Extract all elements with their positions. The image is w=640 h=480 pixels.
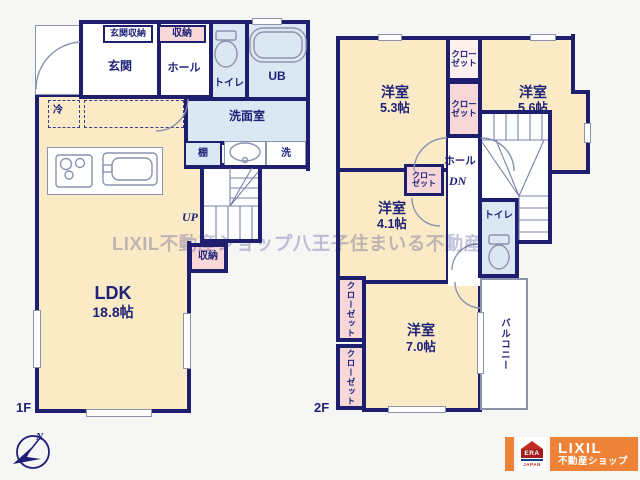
closet-top-label: クローゼット bbox=[451, 50, 477, 68]
room-56-name: 洋室 bbox=[501, 84, 565, 100]
genkan-label: 玄関 bbox=[96, 60, 144, 74]
window bbox=[86, 409, 152, 417]
floor2-label: 2F bbox=[314, 400, 329, 415]
shelf-label: 棚 bbox=[198, 149, 208, 160]
toilet-2f-label: トイレ bbox=[480, 211, 517, 222]
washroom-label: 洗面室 bbox=[214, 110, 280, 124]
closet-70b: クローゼット bbox=[336, 344, 366, 410]
toilet-1f-label: トイレ bbox=[210, 78, 248, 90]
ub-label: UB bbox=[262, 70, 292, 84]
window bbox=[584, 123, 591, 143]
room-bath-ub bbox=[245, 20, 310, 101]
closet-41-label: クローゼット bbox=[412, 172, 436, 189]
hall-1f-label: ホール bbox=[158, 62, 210, 75]
stairs-up-label: UP bbox=[182, 210, 198, 225]
closet-mid-label: クローゼット bbox=[451, 100, 477, 118]
room-70-size: 7.0帖 bbox=[389, 340, 453, 354]
compass-needle bbox=[13, 447, 41, 464]
balcony-label: バルコニー bbox=[497, 318, 511, 371]
closet-70b-label: クローゼット bbox=[345, 349, 357, 406]
window bbox=[183, 313, 191, 369]
logo-shop: 不動産ショップ bbox=[558, 456, 638, 467]
wall-fixtures-bottom bbox=[184, 165, 310, 169]
room-56-notch bbox=[571, 34, 590, 94]
window bbox=[33, 310, 41, 368]
window bbox=[388, 406, 446, 413]
window bbox=[530, 34, 556, 41]
floorplan-image: 棚 洗 玄関収納 収納 冷 玄関 ホール トイレ UB 洗面室 UP 収納 LD… bbox=[0, 0, 640, 480]
logo-orange-bar bbox=[505, 437, 514, 471]
fridge-space: 冷 bbox=[48, 100, 80, 128]
room-53-name: 洋室 bbox=[363, 84, 427, 100]
era-roof-icon bbox=[521, 441, 543, 449]
closet-70a: クローゼット bbox=[336, 276, 366, 342]
ldk-size-label: 18.8帖 bbox=[63, 304, 163, 320]
room-41-name: 洋室 bbox=[360, 200, 424, 216]
laundry-label: 洗 bbox=[281, 148, 291, 160]
washbasin-box bbox=[224, 141, 266, 167]
shelf-box: 棚 bbox=[184, 141, 222, 167]
closet-mid: クローゼット bbox=[446, 80, 482, 138]
watermark-text: LIXIL不動産ショップ八王子住まいる不動産 bbox=[112, 230, 483, 256]
compass: N bbox=[13, 432, 49, 468]
hall-storage-box: 収納 bbox=[158, 25, 206, 43]
era-emblem: ERA JAPAN bbox=[518, 437, 546, 471]
lixil-logo: ERA JAPAN LIXIL 不動産ショップ bbox=[505, 437, 638, 471]
kitchen-cabinet-dashed bbox=[84, 100, 184, 128]
kitchen-counter bbox=[47, 147, 163, 195]
era-blue-bar bbox=[521, 459, 543, 461]
laundry-box: 洗 bbox=[266, 141, 306, 167]
closet-41: クローゼット bbox=[404, 164, 444, 196]
era-label: ERA bbox=[521, 449, 543, 458]
logo-brand: LIXIL bbox=[558, 441, 638, 456]
genkan-storage-label: 玄関収納 bbox=[110, 29, 146, 38]
closet-70a-label: クローゼット bbox=[345, 281, 357, 338]
era-country-label: JAPAN bbox=[523, 462, 540, 467]
compass-north-label: N bbox=[35, 432, 44, 443]
hall-2f-label: ホール bbox=[432, 155, 488, 167]
room-56-size: 5.6帖 bbox=[501, 101, 565, 115]
closet-top: クローゼット bbox=[446, 36, 482, 82]
window bbox=[252, 18, 282, 25]
genkan-storage-box: 玄関収納 bbox=[103, 25, 153, 43]
hall-storage-label: 収納 bbox=[172, 29, 192, 40]
floor1-label: 1F bbox=[16, 400, 31, 415]
fridge-label: 冷 bbox=[53, 105, 63, 117]
stairs-dn-label: DN bbox=[449, 174, 466, 189]
room-70-name: 洋室 bbox=[389, 322, 453, 338]
window bbox=[477, 312, 484, 374]
balcony: バルコニー bbox=[480, 278, 528, 410]
room-53-size: 5.3帖 bbox=[363, 101, 427, 115]
logo-main: LIXIL 不動産ショップ bbox=[550, 437, 638, 471]
ldk-name-label: LDK bbox=[63, 283, 163, 304]
porch bbox=[35, 25, 83, 95]
window bbox=[378, 34, 402, 41]
